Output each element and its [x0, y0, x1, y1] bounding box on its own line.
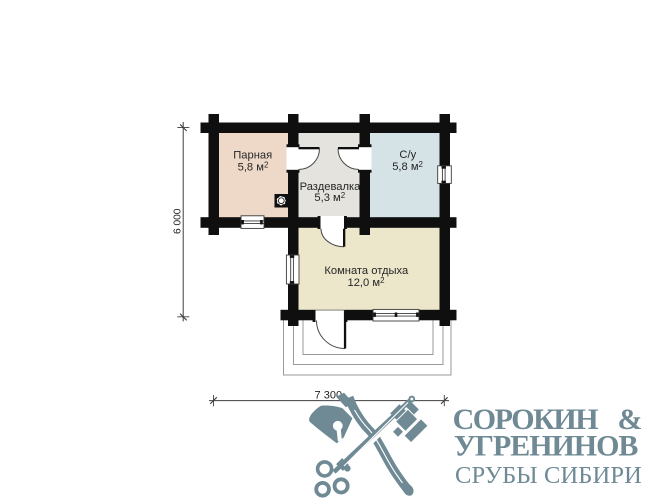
svg-text:С/у: С/у [399, 149, 416, 161]
svg-text:6 000: 6 000 [173, 208, 184, 234]
svg-text:7 300: 7 300 [315, 390, 343, 402]
svg-text:12,0 м2: 12,0 м2 [347, 276, 385, 289]
svg-text:Комната отдыха: Комната отдыха [324, 265, 409, 277]
svg-text:СРУБЫ СИБИРИ: СРУБЫ СИБИРИ [455, 462, 642, 489]
svg-text:УГРЕНИНОВ: УГРЕНИНОВ [454, 430, 639, 463]
